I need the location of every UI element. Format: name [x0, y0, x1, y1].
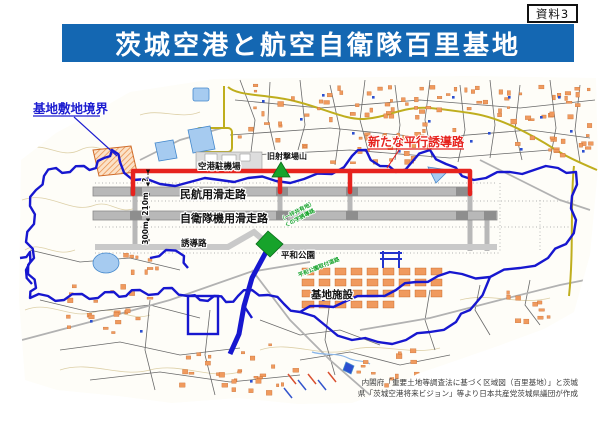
building [585, 147, 591, 150]
terminal-building [155, 140, 177, 161]
building [371, 372, 375, 374]
building-blue [540, 116, 543, 119]
building [329, 117, 332, 122]
building [147, 267, 153, 269]
building [355, 104, 359, 107]
base-facility-building [351, 268, 362, 275]
credit-line-1: 内閣府「重要土地等調査法に基づく区域図（百里基地）」と茨城 [362, 377, 579, 387]
building [183, 370, 188, 375]
building [385, 103, 390, 106]
map-clipped-content [0, 70, 600, 410]
building [254, 107, 257, 109]
building [250, 356, 255, 360]
label-peace-park: 平和公園 [281, 250, 315, 261]
building [278, 122, 281, 125]
building-blue [488, 132, 491, 135]
building [414, 97, 418, 102]
base-facility-building [367, 279, 378, 286]
building [430, 85, 435, 89]
label-civil-runway: 民航用滑走路 [180, 187, 247, 201]
building [419, 110, 425, 114]
building [525, 116, 531, 120]
building [197, 353, 201, 356]
building [437, 96, 442, 98]
building [507, 91, 510, 96]
building [515, 319, 521, 323]
building [145, 270, 148, 275]
building [423, 123, 428, 127]
building [405, 103, 408, 106]
building-blue [300, 118, 303, 121]
building [67, 326, 71, 329]
label-old-range: 旧射撃場山 [267, 151, 307, 161]
base-facility-building [431, 290, 442, 297]
building-blue [90, 320, 93, 323]
building-blue [582, 150, 585, 153]
building [499, 90, 503, 95]
building [238, 136, 242, 139]
building [155, 267, 158, 270]
building [471, 90, 475, 94]
building [260, 374, 266, 377]
credit-line-2: 県「茨城空港将来ビジョン」等より日本共産党茨城県議団が作成 [358, 388, 578, 398]
building [222, 383, 228, 387]
building [515, 142, 520, 146]
building [420, 87, 424, 90]
base-facility-building [383, 268, 394, 275]
base-facility-building [335, 279, 346, 286]
building [576, 92, 580, 97]
building [388, 86, 392, 90]
building [264, 123, 270, 125]
building-blue [352, 132, 355, 135]
building-blue [250, 380, 253, 383]
building [516, 296, 521, 300]
base-facility-building [302, 279, 314, 286]
building [338, 86, 341, 91]
building [232, 388, 236, 392]
building [533, 302, 538, 306]
building [112, 332, 116, 334]
building [66, 315, 70, 318]
terminal-building [188, 126, 215, 153]
label-base-facilities: 基地施設 [310, 288, 353, 301]
building [340, 91, 343, 95]
base-facility-building [383, 279, 394, 286]
label-base-boundary: 基地敷地境界 [32, 101, 109, 116]
building [238, 371, 242, 373]
building [205, 361, 210, 365]
building [363, 360, 368, 363]
building [530, 136, 535, 140]
base-facility-building [367, 301, 378, 308]
building [350, 162, 355, 164]
building [565, 96, 568, 100]
building [89, 315, 95, 319]
building [446, 94, 450, 96]
building-blue [570, 130, 573, 133]
building [415, 115, 419, 119]
building [553, 95, 556, 100]
building-blue [520, 148, 523, 151]
base-facility-building [351, 279, 362, 286]
building [423, 129, 426, 133]
building [404, 151, 409, 156]
building [136, 317, 141, 320]
building [566, 101, 572, 103]
building [401, 98, 405, 102]
building [291, 97, 294, 101]
building [68, 298, 74, 303]
building [179, 383, 185, 387]
building [411, 360, 417, 364]
building [136, 256, 139, 259]
label-jsdf-runway: 自衛隊機用滑走路 [180, 211, 269, 225]
base-facility-building [415, 268, 426, 275]
building [391, 108, 394, 112]
pond [193, 88, 209, 101]
building [389, 114, 394, 118]
building [575, 87, 580, 90]
building [94, 300, 98, 302]
building [189, 372, 194, 374]
building [327, 93, 332, 97]
building [539, 309, 545, 312]
slide-page: 資料3 茨城空港と航空自衛隊百里基地 [0, 0, 600, 424]
building [124, 253, 129, 257]
building [426, 106, 431, 109]
building [587, 123, 592, 127]
building [114, 312, 119, 316]
building [254, 376, 258, 378]
building [103, 327, 108, 329]
building [253, 84, 258, 87]
building [130, 255, 134, 258]
building-blue [372, 96, 375, 99]
building [549, 149, 552, 152]
building [319, 100, 323, 103]
building [587, 88, 590, 91]
building [453, 128, 456, 132]
map-background [0, 70, 600, 410]
building [219, 372, 225, 377]
building [256, 379, 261, 384]
building [588, 142, 593, 146]
building [560, 153, 565, 157]
measurement-runway-gap: 210m [141, 192, 150, 216]
building [483, 100, 488, 104]
building [386, 111, 391, 114]
building [384, 114, 388, 118]
building [498, 113, 502, 117]
building [579, 143, 583, 147]
base-facility-building [319, 279, 330, 286]
base-facility-building [383, 301, 394, 308]
building [519, 93, 522, 95]
building [305, 114, 310, 117]
building [537, 301, 542, 304]
building [498, 109, 501, 113]
building [365, 113, 369, 117]
building [367, 92, 371, 96]
building [254, 90, 257, 92]
building [370, 108, 373, 112]
building [126, 309, 131, 313]
building [524, 319, 529, 324]
base-facility-building [351, 301, 362, 308]
building [304, 146, 307, 148]
building [266, 390, 272, 395]
pond [93, 253, 119, 273]
building [131, 270, 134, 275]
building [330, 161, 335, 164]
building [507, 295, 511, 299]
building-blue [452, 96, 455, 99]
building [232, 380, 237, 384]
building [249, 389, 254, 393]
building [410, 349, 416, 353]
building [257, 377, 262, 379]
building [276, 138, 281, 142]
building [281, 383, 284, 387]
building [357, 371, 361, 373]
building [507, 291, 510, 295]
building [378, 87, 383, 90]
label-apron: 空港駐機場 [198, 161, 241, 172]
building [507, 107, 510, 109]
building [414, 106, 417, 109]
base-facility-building [415, 290, 426, 297]
building [186, 356, 191, 359]
building [547, 316, 550, 319]
building-blue [508, 96, 511, 99]
building [216, 373, 219, 376]
building [121, 284, 126, 289]
building [262, 111, 265, 116]
building [361, 365, 365, 367]
building [208, 355, 211, 358]
building [324, 101, 330, 105]
building [249, 127, 254, 131]
building [539, 85, 544, 89]
building [359, 137, 362, 139]
building [390, 99, 393, 102]
building [550, 137, 555, 139]
building [278, 102, 284, 107]
building-blue [428, 120, 431, 123]
measurement-new-gap: ? [141, 178, 150, 182]
building [454, 87, 457, 91]
building [511, 119, 517, 124]
building [465, 88, 468, 93]
building [565, 92, 571, 96]
building [538, 316, 544, 319]
building [317, 107, 320, 110]
building [241, 352, 245, 354]
building [437, 108, 442, 112]
building [467, 107, 471, 110]
building [550, 112, 555, 117]
building [568, 115, 574, 119]
building [269, 344, 272, 346]
building [554, 149, 560, 152]
base-facility-building [399, 290, 410, 297]
building [271, 365, 275, 369]
building-blue [470, 140, 473, 143]
building [561, 139, 565, 144]
building [293, 368, 299, 372]
measurement-taxiway-gap: 300m [141, 221, 150, 245]
building [115, 320, 121, 324]
building [414, 372, 419, 377]
building [586, 134, 589, 136]
base-facility-building [399, 268, 410, 275]
building [477, 101, 482, 103]
base-facility-building [335, 268, 346, 275]
building [276, 384, 279, 387]
building-blue [558, 96, 561, 99]
base-map: ? 210m 300m 基地敷地境界 新たな平行誘導路 空港駐機場 旧射撃場山 … [0, 0, 600, 424]
building-blue [262, 100, 265, 103]
base-facility-building [367, 268, 378, 275]
building [475, 86, 479, 90]
building-blue [140, 330, 143, 333]
label-new-taxiway: 新たな平行誘導路 [368, 134, 465, 149]
building [147, 297, 153, 299]
label-taxiway: 誘導路 [181, 238, 207, 249]
building-blue [322, 94, 325, 97]
building [398, 352, 401, 355]
building [72, 285, 76, 288]
building [575, 104, 580, 107]
building [350, 112, 355, 115]
